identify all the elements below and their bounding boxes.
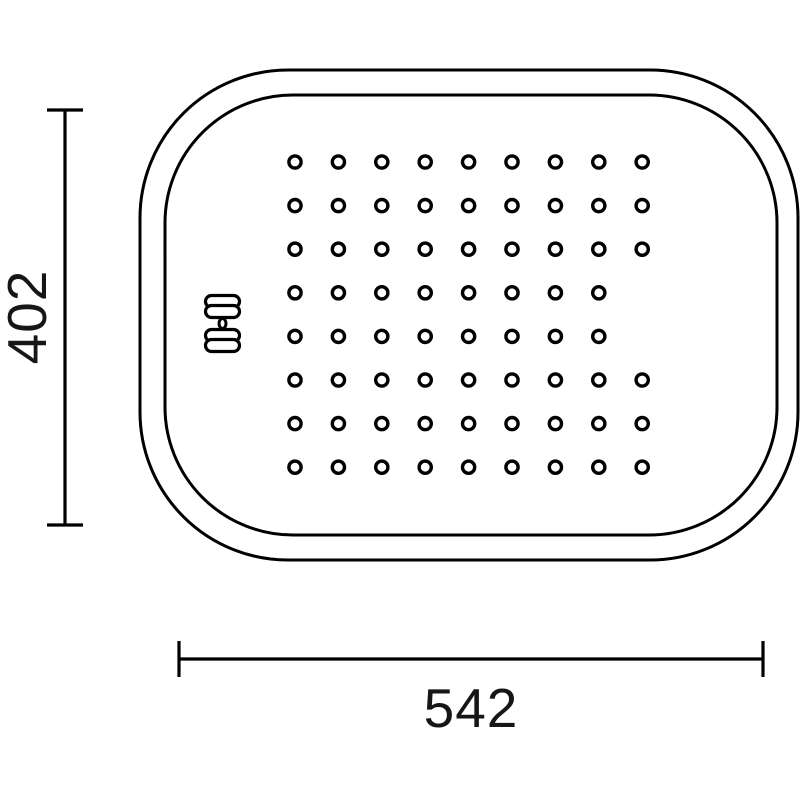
perforation-hole bbox=[419, 461, 431, 473]
perforation-hole bbox=[376, 156, 388, 168]
perforation-hole bbox=[332, 156, 344, 168]
technical-drawing-canvas: 402 542 bbox=[0, 0, 800, 800]
perforation-hole bbox=[636, 156, 648, 168]
perforation-hole bbox=[593, 330, 605, 342]
perforation-hole bbox=[332, 243, 344, 255]
perforation-hole bbox=[593, 374, 605, 386]
perforation-hole bbox=[289, 243, 301, 255]
perforation-hole bbox=[463, 330, 475, 342]
perforation-hole bbox=[289, 461, 301, 473]
emblem-bar bbox=[206, 340, 240, 352]
perforation-hole bbox=[376, 418, 388, 430]
double-bar-emblem-icon bbox=[206, 296, 240, 352]
perforation-hole bbox=[463, 374, 475, 386]
perforation-hole bbox=[289, 156, 301, 168]
perforation-hole bbox=[549, 287, 561, 299]
perforation-hole bbox=[463, 243, 475, 255]
width-dimension-label: 542 bbox=[424, 677, 519, 739]
perforation-hole bbox=[549, 374, 561, 386]
perforated-tray-diagram: 402 542 bbox=[0, 0, 800, 800]
perforation-hole bbox=[332, 287, 344, 299]
perforation-hole bbox=[549, 156, 561, 168]
perforation-hole bbox=[506, 374, 518, 386]
perforation-hole bbox=[506, 200, 518, 212]
perforation-hole bbox=[463, 200, 475, 212]
perforation-hole bbox=[332, 374, 344, 386]
perforation-hole bbox=[636, 374, 648, 386]
perforation-hole bbox=[419, 200, 431, 212]
perforation-hole bbox=[636, 243, 648, 255]
perforation-hole bbox=[593, 287, 605, 299]
emblem-bar bbox=[206, 306, 240, 318]
perforation-hole bbox=[593, 418, 605, 430]
perforation-hole bbox=[549, 461, 561, 473]
perforation-hole bbox=[506, 243, 518, 255]
perforation-hole bbox=[376, 461, 388, 473]
emblem-dot bbox=[219, 319, 226, 329]
perforation-hole bbox=[463, 461, 475, 473]
perforation-hole bbox=[289, 330, 301, 342]
perforation-hole bbox=[463, 287, 475, 299]
width-dimension: 542 bbox=[179, 641, 763, 739]
perforation-grid bbox=[289, 156, 648, 473]
perforation-hole bbox=[506, 330, 518, 342]
perforation-hole bbox=[419, 287, 431, 299]
perforation-hole bbox=[419, 374, 431, 386]
height-dimension: 402 bbox=[0, 110, 83, 525]
perforation-hole bbox=[332, 461, 344, 473]
perforation-hole bbox=[332, 200, 344, 212]
perforation-hole bbox=[289, 287, 301, 299]
perforation-hole bbox=[376, 330, 388, 342]
perforation-hole bbox=[506, 418, 518, 430]
perforation-hole bbox=[289, 374, 301, 386]
perforation-hole bbox=[549, 418, 561, 430]
perforation-hole bbox=[419, 418, 431, 430]
perforation-hole bbox=[463, 156, 475, 168]
perforation-hole bbox=[549, 330, 561, 342]
perforation-hole bbox=[419, 156, 431, 168]
perforation-hole bbox=[636, 200, 648, 212]
perforation-hole bbox=[332, 418, 344, 430]
perforation-hole bbox=[593, 461, 605, 473]
perforation-hole bbox=[636, 461, 648, 473]
perforation-hole bbox=[593, 200, 605, 212]
perforation-hole bbox=[463, 418, 475, 430]
perforation-hole bbox=[419, 243, 431, 255]
perforation-hole bbox=[506, 156, 518, 168]
perforation-hole bbox=[593, 156, 605, 168]
perforation-hole bbox=[506, 461, 518, 473]
perforation-hole bbox=[376, 200, 388, 212]
perforation-hole bbox=[332, 330, 344, 342]
perforation-hole bbox=[636, 418, 648, 430]
perforation-hole bbox=[376, 374, 388, 386]
perforation-hole bbox=[289, 200, 301, 212]
perforation-hole bbox=[506, 287, 518, 299]
height-dimension-label: 402 bbox=[0, 270, 58, 365]
perforation-hole bbox=[593, 243, 605, 255]
perforation-hole bbox=[376, 243, 388, 255]
perforation-hole bbox=[419, 330, 431, 342]
perforation-hole bbox=[549, 243, 561, 255]
perforation-hole bbox=[549, 200, 561, 212]
perforation-hole bbox=[289, 418, 301, 430]
perforation-hole bbox=[376, 287, 388, 299]
